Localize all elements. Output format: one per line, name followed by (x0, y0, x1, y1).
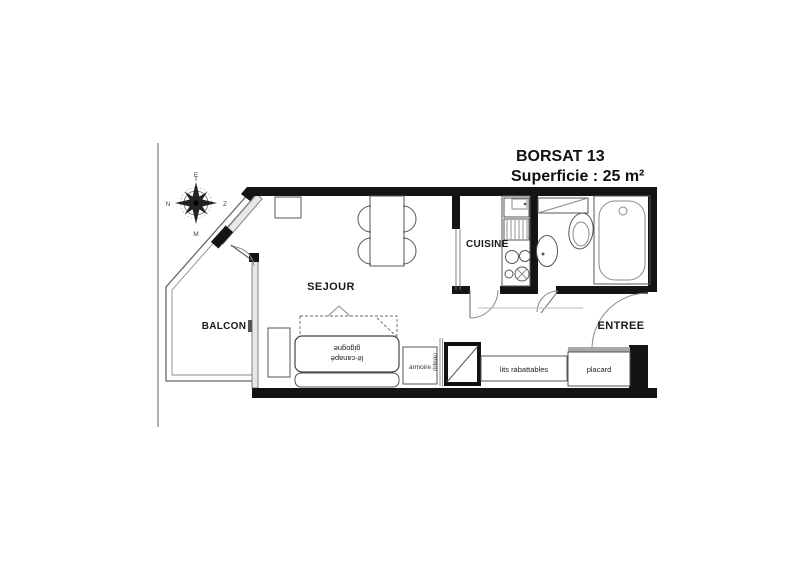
sofa-label-line1: lit-canapé (331, 354, 364, 363)
sofa-label-line2: gigogne (334, 344, 361, 353)
entree-label: ENTREE (597, 320, 644, 332)
cuisine-label: CUISINE (466, 239, 509, 250)
wall-kitchen-bath (530, 187, 538, 292)
bathtub-inner (599, 201, 645, 280)
toilet-bowl (567, 212, 596, 251)
washbasin-tap (542, 253, 545, 256)
sofa-label: lit-canapé gigogne (331, 344, 364, 363)
washbasin (537, 236, 558, 267)
sink-hatching (507, 220, 527, 239)
hob-burner-1 (506, 251, 519, 264)
storage-row: armoire rideau lits rabattables placard (403, 338, 630, 386)
lits-rabattables-label: lits rabattables (500, 365, 549, 374)
sofa-bed-drawer (295, 373, 399, 387)
floor-plan-drawing: BORSAT 13 Superficie : 25 m² E Z M N (0, 0, 800, 566)
chair-left-2 (358, 238, 371, 264)
bath-shelf-diagonal (538, 198, 588, 213)
hob-burner-3 (505, 270, 513, 278)
wall-window-sill-block (249, 253, 259, 262)
plan-title: BORSAT 13 (516, 148, 605, 165)
bathroom-door-swing (537, 291, 558, 312)
compass-letter-bottom: M (193, 231, 198, 238)
fridge (504, 198, 529, 217)
floor-plan-page: BORSAT 13 Superficie : 25 m² E Z M N (0, 0, 800, 566)
side-shelf (268, 328, 290, 377)
sejour-label: SEJOUR (307, 281, 355, 293)
chair-right-1 (403, 206, 416, 232)
bathroom-door-leaf (541, 291, 558, 313)
rideau-label: rideau (432, 353, 439, 371)
dining-table (370, 196, 404, 266)
sink-drainer (504, 219, 529, 240)
chair-right-2 (403, 238, 416, 264)
bathtub-drain (619, 207, 627, 215)
kitchen-door-swing (470, 290, 498, 318)
wall-kitchen-pier (452, 187, 460, 229)
doors (231, 245, 648, 349)
armoire-label: armoire (409, 364, 431, 371)
bathroom-fixtures (537, 196, 651, 284)
windows (218, 194, 262, 388)
window-handle (248, 320, 252, 332)
room-labels: BALCON SEJOUR CUISINE ENTREE (202, 239, 645, 332)
wall-kitchen-bottom-left (452, 286, 470, 294)
sofa-fold-mark (328, 306, 350, 316)
sofa-bed (295, 336, 399, 372)
wall-bottom (252, 388, 657, 398)
sofa-backrest-dashed (300, 316, 397, 338)
sofa-corner-dashed (377, 318, 396, 336)
title-block: BORSAT 13 Superficie : 25 m² (511, 148, 644, 185)
chair-left-1 (358, 206, 371, 232)
compass-letter-right: Z (223, 201, 227, 208)
placard-label: placard (587, 365, 612, 374)
wall-kitchen-bottom-right (500, 286, 538, 294)
hob-burner-2 (520, 251, 531, 262)
compass-letter-top: E (194, 172, 199, 179)
compass-letter-left: N (166, 201, 171, 208)
balcony-door-swing (231, 246, 254, 266)
bathtub (594, 196, 650, 284)
fridge-knob (524, 203, 527, 206)
wall-bath-bottom (556, 286, 648, 294)
wall-right-upper (648, 187, 657, 292)
tv-unit (275, 197, 301, 218)
plan-surface: Superficie : 25 m² (511, 168, 644, 185)
balcon-label: BALCON (202, 321, 247, 332)
window-vertical (252, 260, 258, 388)
placard-top-bar (568, 347, 630, 352)
